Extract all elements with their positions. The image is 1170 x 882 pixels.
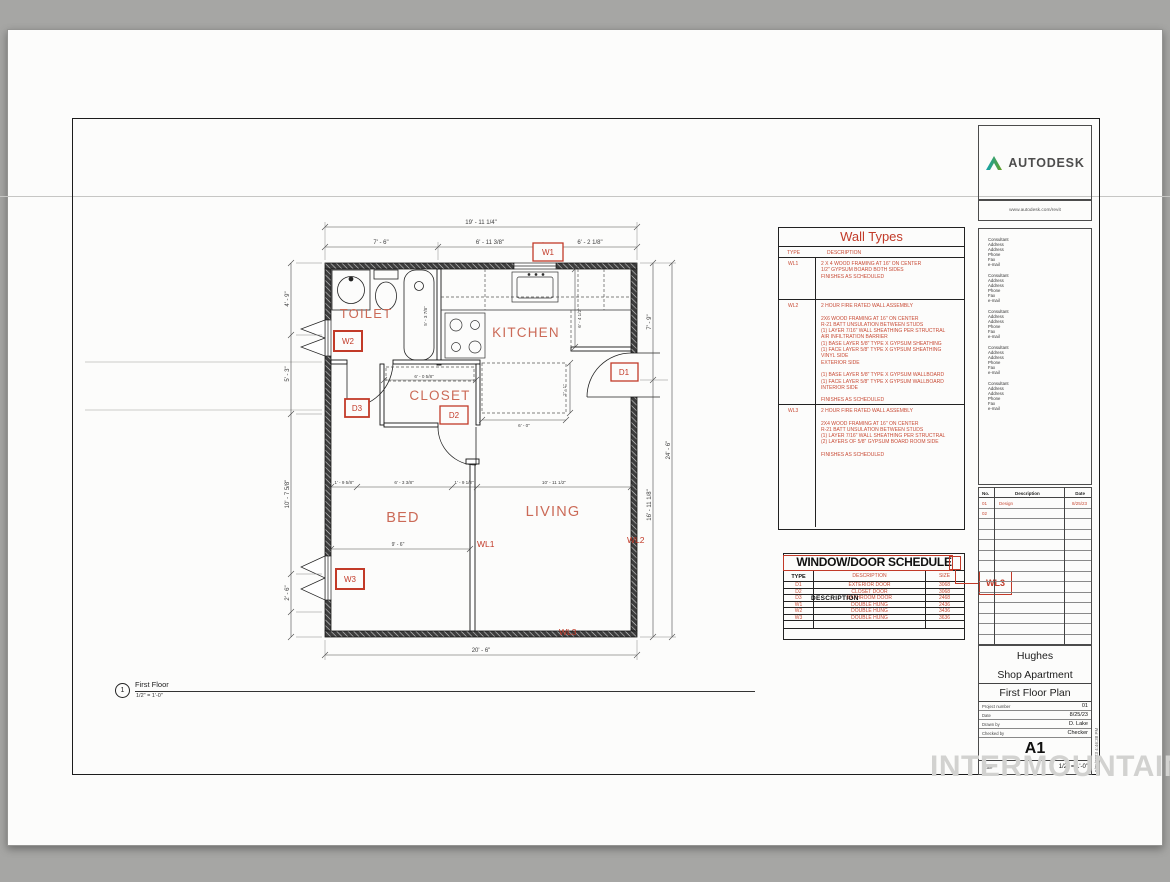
view-title-line	[135, 691, 755, 692]
room-label-bed: BED	[386, 510, 419, 526]
autodesk-url-box: www.autodesk.com/revit	[978, 200, 1092, 221]
dim-bed-a: 1' - 9 5/8"	[334, 480, 354, 485]
tag-w1: W1	[542, 248, 555, 257]
schedule-header-row: TYPE DESCRIPTION SIZE	[784, 571, 964, 582]
revision-table-divider	[1064, 487, 1065, 645]
tag-w2: W2	[342, 337, 355, 346]
tag-w3: W3	[344, 575, 357, 584]
dim-right-overall: 24' - 6"	[666, 441, 672, 460]
autodesk-wordmark: AUTODESK	[1008, 156, 1084, 170]
consultant-block: Consultant Address Address Phone Fax e-m…	[988, 273, 1009, 303]
sheet-title: First Floor Plan	[979, 683, 1091, 702]
interior-walls	[331, 269, 631, 631]
schedule-overlap-text: DESCRIPTION	[811, 595, 859, 602]
callout-leader-vertical	[955, 570, 956, 583]
view-title-name: First Floor	[135, 680, 169, 689]
revision-header: No. Description Date	[979, 488, 1091, 498]
wall-types-table: Wall Types TYPE DESCRIPTION WL1 2 X 4 WO…	[778, 227, 965, 530]
dim-island-width: 6' - 0"	[518, 423, 530, 428]
consultant-block: Consultant Address Address Phone Fax e-m…	[988, 237, 1009, 267]
wall-types-header-description: DESCRIPTION	[827, 250, 861, 256]
autodesk-logo-box: AUTODESK	[978, 125, 1092, 200]
wall-type-id: WL1	[779, 258, 816, 299]
room-label-living: LIVING	[526, 504, 581, 520]
revision-row: 01 Design 8/25/23	[979, 498, 1091, 509]
dim-top-a: 7' - 6"	[373, 240, 388, 246]
dim-left-d: 2' - 6"	[285, 585, 291, 600]
wall-type-row: WL2 2 HOUR FIRE RATED WALL ASSEMBLY 2X6 …	[779, 300, 964, 405]
dim-bed-b: 6' - 3 3/8"	[394, 480, 414, 485]
callout-leader-horizontal	[955, 583, 980, 584]
field-drawn-by: Drawn by D. Lake	[979, 720, 1091, 729]
dim-tub-length: 5' - 3 7/8"	[423, 306, 428, 326]
intermountain-watermark: INTERMOUNTAIN	[930, 750, 1170, 784]
schedule-header-size: SIZE	[926, 571, 963, 581]
dim-right-a: 7' - 9"	[647, 314, 653, 329]
consultant-box: Consultant Address Address Phone Fax e-m…	[978, 228, 1092, 485]
wall-type-id: WL3	[779, 405, 816, 527]
dim-closet-width: 6' - 0 5/8"	[414, 374, 434, 379]
room-label-toilet: TOILET	[340, 306, 392, 321]
dim-bed-c: 1' - 9 1/2"	[454, 480, 474, 485]
dim-top-b: 6' - 11 3/8"	[476, 240, 504, 246]
wall-type-labels: WL1 WL2 WL3	[477, 535, 645, 637]
dim-bed-width: 9' - 6"	[392, 542, 405, 548]
dim-kitchen-depth: 6' - 4 1/2"	[577, 308, 582, 328]
wall-types-header-type: TYPE	[787, 250, 800, 256]
wall-type-id: WL2	[779, 300, 816, 404]
field-checked-by: Checked by Checker	[979, 729, 1091, 738]
dim-right-b: 16' - 11 1/8"	[647, 489, 653, 521]
wall-label-wl3: WL3	[559, 627, 577, 637]
dim-left-b: 5' - 3"	[285, 366, 291, 381]
dim-top-c: 6' - 2 1/8"	[577, 240, 602, 246]
consultant-block: Consultant Address Address Phone Fax e-m…	[988, 381, 1009, 411]
revision-table-divider	[994, 487, 995, 645]
wall-type-row: WL1 2 X 4 WOOD FRAMING AT 16" ON CENTER …	[779, 258, 964, 300]
tag-d1: D1	[619, 368, 630, 377]
dim-left-a: 4' - 9"	[285, 291, 291, 306]
field-date: Date 8/25/23	[979, 711, 1091, 720]
floor-plan-drawing: 19' - 11 1/4" 7' - 6" 6' - 11 3/8" 6' - …	[75, 190, 775, 720]
room-label-kitchen: KITCHEN	[492, 325, 560, 340]
dim-bottom-overall: 20' - 6"	[472, 648, 491, 654]
schedule-header-description: DESCRIPTION	[814, 571, 926, 581]
wall-type-row: WL3 2 HOUR FIRE RATED WALL ASSEMBLY 2X4 …	[779, 405, 964, 527]
revision-row: 02	[979, 509, 1091, 520]
owner-name: Hughes	[979, 646, 1091, 667]
dim-island-depth: 2' - 1"	[562, 384, 567, 396]
project-name: Shop Apartment	[979, 667, 1091, 683]
consultant-block: Consultant Address Address Phone Fax e-m…	[988, 345, 1009, 375]
wall-type-description: 2 HOUR FIRE RATED WALL ASSEMBLY 2X6 WOOD…	[816, 300, 964, 404]
field-project-number: Project number 01	[979, 702, 1091, 711]
room-label-closet: CLOSET	[409, 388, 470, 403]
wall-types-header: TYPE DESCRIPTION	[779, 247, 964, 258]
dimension-lines	[288, 222, 676, 660]
wall-types-title: Wall Types	[779, 228, 964, 247]
autodesk-triangle-icon	[985, 155, 1003, 171]
schedule-empty-row	[784, 621, 964, 629]
tag-d3: D3	[352, 404, 363, 413]
view-number-bubble: 1	[115, 683, 130, 698]
schedule-red-callout-square	[949, 556, 961, 570]
schedule-header-type: TYPE	[784, 571, 814, 581]
schedule-red-callout-frame	[783, 555, 953, 571]
wall-label-wl1: WL1	[477, 539, 495, 549]
tag-d2: D2	[449, 411, 460, 420]
dim-left-c: 10' - 7 5/8"	[285, 480, 291, 509]
dim-top-overall: 19' - 11 1/4"	[465, 220, 497, 226]
view-title-scale: 1/2" = 1'-0"	[136, 693, 163, 699]
consultant-block: Consultant Address Address Phone Fax e-m…	[988, 309, 1009, 339]
wall-type-description: 2 X 4 WOOD FRAMING AT 16" ON CENTER 1/2"…	[816, 258, 964, 299]
wall-type-description: 2 HOUR FIRE RATED WALL ASSEMBLY 2X4 WOOD…	[816, 405, 964, 527]
revision-table: No. Description Date 01 Design 8/25/23 0…	[978, 487, 1092, 645]
dim-living-a: 10' - 11 1/2"	[542, 480, 566, 485]
sheet-viewport: 19' - 11 1/4" 7' - 6" 6' - 11 3/8" 6' - …	[0, 0, 1170, 882]
wall-label-wl2: WL2	[627, 535, 645, 545]
